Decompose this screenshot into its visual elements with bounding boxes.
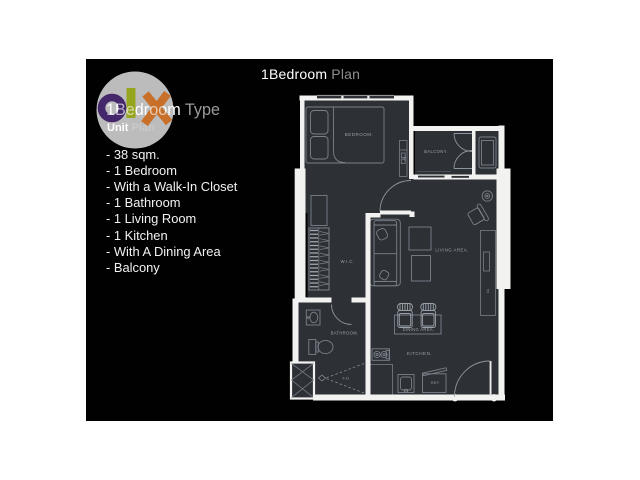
svg-text:KITCHEN.: KITCHEN. [407, 351, 432, 356]
svg-text:BEDROOM.: BEDROOM. [345, 132, 374, 137]
svg-text:TV: TV [486, 289, 490, 294]
svg-text:DINING AREA.: DINING AREA. [403, 327, 435, 332]
svg-text:BALCONY.: BALCONY. [424, 149, 448, 154]
svg-text:W.I.C.: W.I.C. [341, 259, 355, 264]
svg-text:REF.: REF. [431, 381, 440, 385]
svg-text:F.D.: F.D. [343, 377, 351, 381]
svg-text:BATHROOM.: BATHROOM. [331, 331, 359, 336]
svg-text:LIVING AREA.: LIVING AREA. [435, 248, 468, 253]
